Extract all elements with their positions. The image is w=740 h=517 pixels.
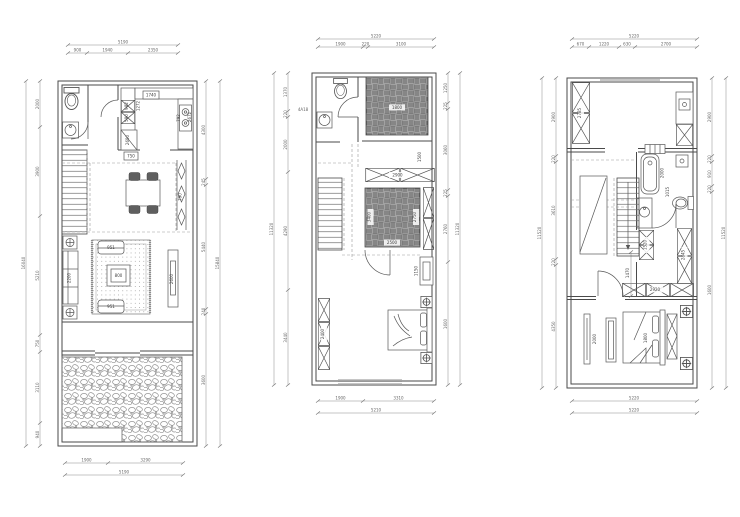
room-label: 2750	[412, 211, 417, 222]
stairs	[318, 144, 352, 260]
dim-label: 2900	[551, 111, 556, 122]
dim-label: 1900	[335, 42, 346, 47]
nightstand-icon	[421, 296, 432, 307]
dim-label: 220	[707, 185, 712, 193]
nightstand-icon	[421, 352, 432, 363]
room-label: 2000	[592, 333, 597, 344]
room-label: 792	[176, 114, 181, 122]
dim-label: 900	[74, 48, 82, 53]
room-label: 951	[107, 304, 115, 309]
floor-plan-2: 5220 1900 220 3100 1900 3310 5210 1370 2…	[265, 10, 475, 430]
room-label: 2920	[650, 287, 661, 292]
dim-label: 16040	[21, 256, 26, 269]
water-heater-icon	[676, 155, 688, 167]
dim-label: 225	[443, 102, 448, 110]
toilet-icon	[64, 88, 79, 110]
bedside-chest	[667, 314, 677, 359]
bed-icon	[388, 308, 432, 352]
dim-label: 3060	[443, 144, 448, 155]
bench	[606, 318, 616, 362]
window	[338, 380, 402, 384]
understair-closet	[580, 176, 607, 254]
room-label: 2000	[660, 167, 665, 178]
dim-label: 4290	[283, 225, 288, 236]
room-label: 1800	[643, 332, 648, 343]
dim-label: 1940	[102, 48, 113, 53]
dim-label: 5210	[35, 270, 40, 281]
dim-label: 220	[551, 258, 556, 266]
room-label: 2690	[125, 134, 130, 145]
annotation: 4A18	[298, 107, 309, 112]
room-label: 2845	[681, 249, 686, 260]
dim-label: 11520	[721, 226, 726, 239]
room-label: 1800	[392, 105, 403, 110]
dim-label: 11520	[537, 226, 542, 239]
dim-label: 1220	[599, 42, 610, 47]
dim-label: 3610	[551, 205, 556, 216]
dim-label: 15840	[215, 256, 220, 269]
room-label: 2500	[387, 240, 398, 245]
door-arc	[365, 250, 390, 275]
dim-label: 2900	[707, 111, 712, 122]
bathtub-icon	[641, 154, 659, 194]
dim-label: 5220	[371, 34, 382, 39]
room-label: 2785	[577, 107, 582, 118]
dim-label: 11320	[455, 222, 460, 235]
room-label: 790	[178, 193, 183, 201]
dim-label: 630	[623, 42, 631, 47]
room-label: 1272	[136, 100, 141, 111]
room-label: 2672	[187, 111, 192, 122]
dim-label: 5220	[629, 408, 640, 413]
dim-label: 3110	[35, 382, 40, 393]
dim-label: 4300	[201, 124, 206, 135]
dim-label: 670	[577, 42, 585, 47]
floor-plan-1: 5190 900 1940 2350 1900 3290 5190 2000 3…	[15, 10, 255, 500]
tv-cabinet	[584, 314, 590, 364]
dim-label: 5190	[119, 470, 130, 475]
room-label: 590	[124, 114, 129, 122]
dim-label: 3100	[396, 42, 407, 47]
room-label: 1470	[625, 267, 630, 278]
dim-label: 4350	[551, 321, 556, 332]
cabinet	[676, 124, 692, 145]
door-arc	[338, 97, 358, 117]
dim-label: 245	[201, 178, 206, 186]
dim-label: 2760	[443, 223, 448, 234]
room-label: 2400	[320, 328, 325, 339]
window-sill	[645, 145, 665, 154]
dim-label: 3900	[35, 166, 40, 177]
room-label: 2600	[169, 273, 174, 284]
door-arc	[598, 271, 623, 296]
stairs	[62, 150, 87, 234]
dim-label: 1250	[443, 82, 448, 93]
dim-label: 2350	[148, 48, 159, 53]
dining-table	[126, 173, 160, 214]
room-label: 1520	[643, 239, 648, 250]
dim-label: 3310	[393, 396, 404, 401]
dim-label: 5220	[629, 34, 640, 39]
nightstand-icon	[680, 357, 692, 369]
dim-label: 220	[707, 155, 712, 163]
dim-label: 220	[283, 110, 288, 118]
dim-label: 3290	[140, 458, 151, 463]
room-label: 750	[127, 154, 135, 159]
dim-label: 3440	[283, 332, 288, 343]
side-table-lamp	[63, 306, 77, 319]
dim-label: 1900	[81, 458, 92, 463]
dim-label: 3600	[201, 374, 206, 385]
room-label: 1500	[417, 151, 422, 162]
window	[600, 79, 660, 80]
dim-label: 5220	[629, 396, 640, 401]
toilet-icon	[334, 78, 348, 98]
chest	[420, 257, 433, 285]
washbasin-icon	[63, 122, 79, 138]
dim-label: 5190	[118, 40, 129, 45]
dim-label: 2000	[283, 139, 288, 150]
side-table-lamp	[63, 236, 77, 249]
dim-label: 11320	[269, 222, 274, 235]
dim-label: 1370	[283, 86, 288, 97]
terrace-paving	[62, 357, 182, 442]
dim-label: 2700	[661, 42, 672, 47]
floor-plan-sheet: 5190 900 1940 2350 1900 3290 5190 2000 3…	[0, 0, 740, 517]
washbasin-icon	[317, 112, 332, 128]
dim-label: 5210	[371, 408, 382, 413]
room-label: 2200	[67, 272, 72, 283]
dim-label: 1600	[443, 318, 448, 329]
room-label: 982	[124, 102, 129, 110]
dim-label: 240	[201, 307, 206, 315]
room-label: 951	[107, 245, 115, 250]
room-label: 1150	[414, 265, 419, 276]
room-label: 1015	[665, 186, 670, 197]
dim-label: 1600	[707, 284, 712, 295]
dim-label: 2000	[35, 98, 40, 109]
floor-plan-3: 5220 670 1220 630 2700 5220 5220 2900 22…	[530, 10, 740, 430]
room-label: 2900	[392, 173, 403, 178]
sink-cabinet	[676, 92, 693, 124]
dim-label: 1900	[335, 396, 346, 401]
dim-label: 225	[443, 189, 448, 197]
dim-label: 220	[551, 155, 556, 163]
door-arc	[652, 204, 676, 228]
dim-label: 750	[35, 339, 40, 347]
nightstand-icon	[680, 305, 692, 317]
dim-label: 910	[707, 170, 712, 178]
room-label: 3400	[367, 211, 372, 222]
room-label: 1740	[146, 93, 157, 98]
room-label: 800	[115, 273, 123, 278]
dim-label: 5440	[201, 241, 206, 252]
dim-label: 940	[35, 430, 40, 438]
dim-label: 220	[362, 42, 370, 47]
